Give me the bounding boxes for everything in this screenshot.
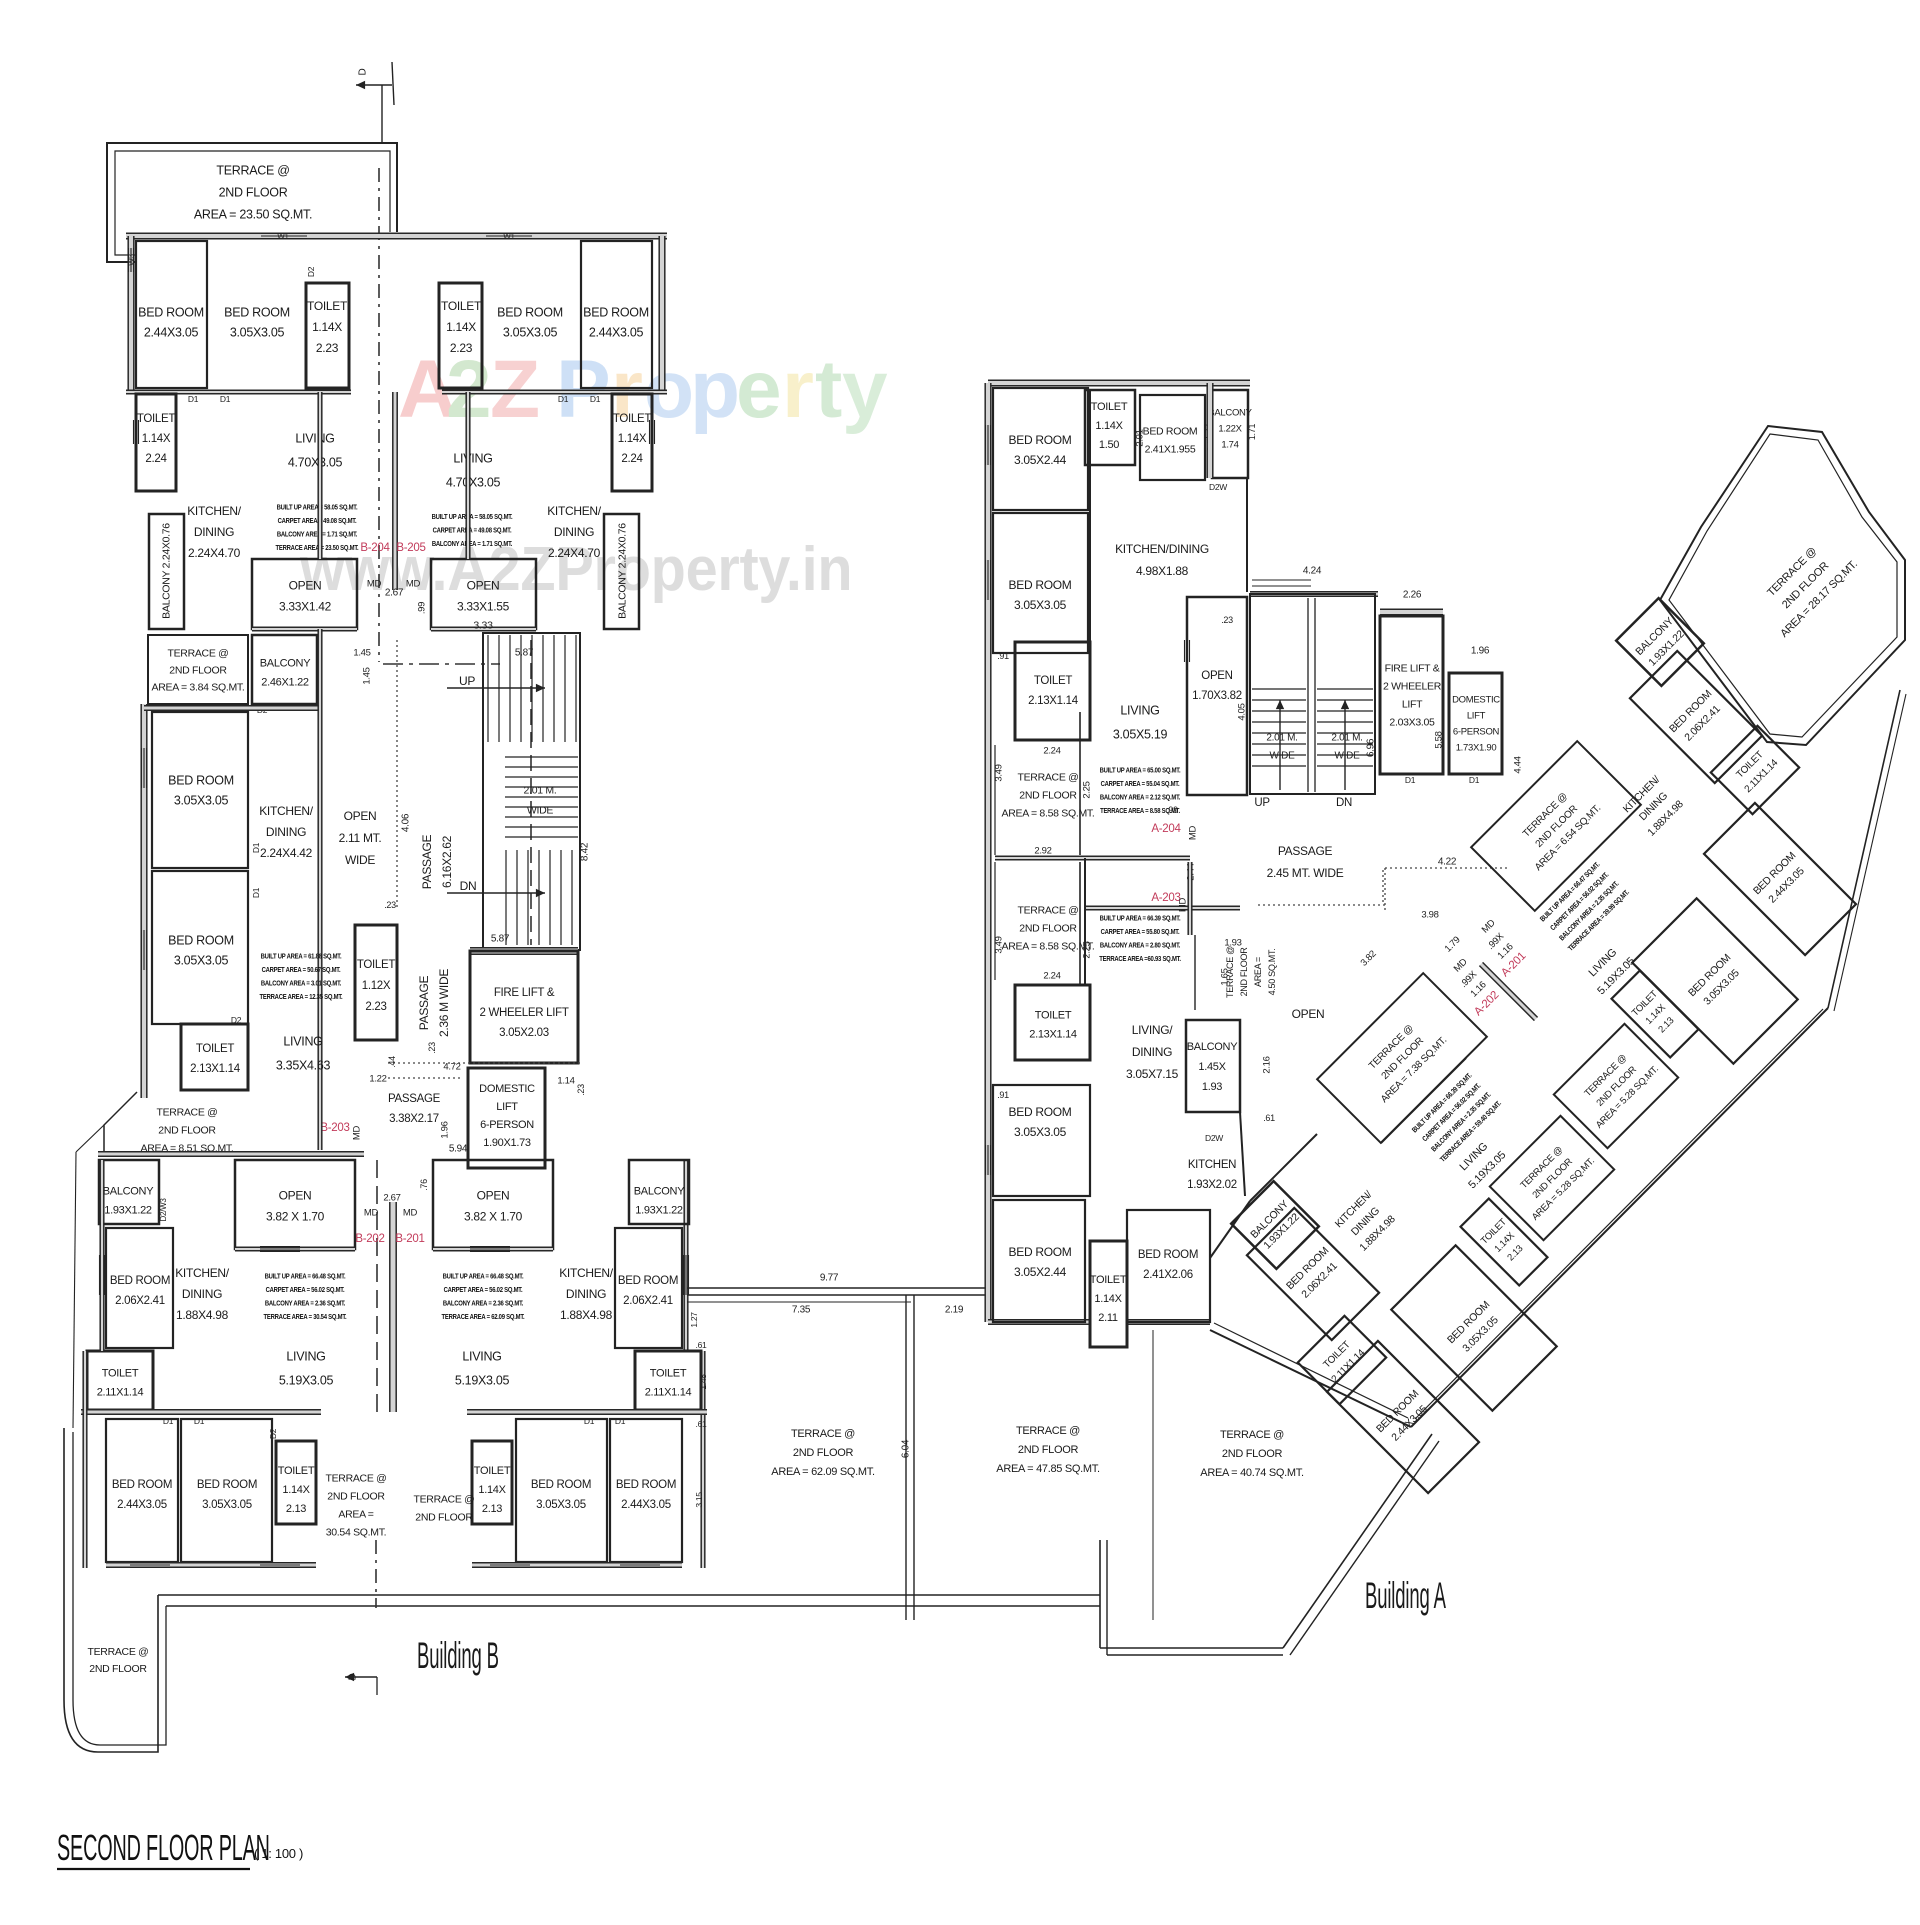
svg-text:2.01 M.: 2.01 M. [1266, 733, 1297, 744]
svg-text:D1: D1 [558, 394, 569, 404]
svg-text:OPEN: OPEN [1292, 1007, 1325, 1021]
svg-text:3.98: 3.98 [1421, 909, 1438, 920]
svg-text:1.71: 1.71 [1247, 424, 1257, 441]
svg-text:D1: D1 [194, 1416, 205, 1426]
svg-text:DN: DN [1336, 797, 1352, 809]
svg-text:2.25: 2.25 [1081, 941, 1092, 958]
svg-text:2.24: 2.24 [1043, 970, 1060, 981]
svg-text:KITCHEN/DINING1.88X4.98: KITCHEN/DINING1.88X4.98 [175, 1266, 230, 1322]
svg-text:2.01 M.: 2.01 M. [524, 785, 557, 797]
svg-text:( 1: 100 ): ( 1: 100 ) [254, 1846, 303, 1861]
svg-text:D1: D1 [615, 1416, 626, 1426]
svg-text:D1: D1 [220, 394, 231, 404]
svg-text:.91: .91 [997, 1090, 1009, 1100]
svg-text:9.77: 9.77 [820, 1273, 839, 1284]
svg-text:B-201: B-201 [395, 1233, 424, 1245]
svg-text:BALCONY 2.24X0.76: BALCONY 2.24X0.76 [161, 523, 173, 619]
svg-text:DN: DN [460, 879, 477, 893]
svg-text:D1: D1 [251, 842, 261, 853]
svg-text:D2W: D2W [1205, 1133, 1223, 1143]
svg-text:3.15: 3.15 [694, 1492, 704, 1508]
svg-text:A-204: A-204 [1151, 823, 1181, 835]
svg-text:KITCHEN/DINING2.24X4.42: KITCHEN/DINING2.24X4.42 [259, 804, 314, 860]
svg-text:.61: .61 [1263, 1113, 1275, 1123]
svg-text:UP: UP [459, 674, 475, 688]
svg-text:.61: .61 [696, 1340, 707, 1350]
svg-text:D2: D2 [231, 1015, 242, 1025]
svg-text:W3: W3 [127, 253, 136, 265]
svg-text:2.25: 2.25 [1081, 781, 1092, 798]
svg-text:D: D [348, 1673, 359, 1680]
svg-text:KITCHEN/DINING2.24X4.70: KITCHEN/DINING2.24X4.70 [547, 504, 602, 560]
svg-text:2.67: 2.67 [383, 1192, 400, 1203]
svg-text:1.45: 1.45 [353, 647, 370, 658]
svg-text:Building B: Building B [417, 1636, 499, 1676]
svg-text:5.58: 5.58 [1433, 731, 1444, 748]
svg-text:BUILT UP AREA = 58.05 SQ.MT.CA: BUILT UP AREA = 58.05 SQ.MT.CARPET AREA … [432, 514, 513, 549]
svg-text:2.19: 2.19 [945, 1305, 964, 1316]
svg-text:KITCHEN/DINING2.24X4.70: KITCHEN/DINING2.24X4.70 [187, 504, 242, 560]
svg-text:2.67: 2.67 [385, 588, 404, 599]
svg-text:D2/W3: D2/W3 [159, 1198, 168, 1222]
svg-text:.23: .23 [427, 1042, 437, 1054]
svg-text:MD: MD [367, 578, 382, 589]
svg-text:D1: D1 [251, 887, 261, 898]
svg-text:A-203: A-203 [1151, 892, 1180, 904]
svg-text:W1: W1 [277, 232, 289, 241]
svg-text:SECOND FLOOR PLAN: SECOND FLOOR PLAN [57, 1829, 270, 1869]
svg-text:1.96: 1.96 [1471, 646, 1490, 657]
svg-text:1.48: 1.48 [698, 1374, 708, 1390]
svg-text:D: D [358, 68, 369, 75]
svg-text:D1: D1 [584, 1416, 595, 1426]
svg-text:4.05: 4.05 [1236, 703, 1247, 720]
svg-text:.23: .23 [1221, 615, 1233, 625]
svg-text:D2W: D2W [1209, 482, 1227, 492]
svg-text:MD: MD [364, 1207, 379, 1218]
svg-text:r: r [782, 344, 814, 435]
svg-text:2.01 M.: 2.01 M. [1331, 733, 1362, 744]
svg-text:W1: W1 [503, 232, 515, 241]
svg-text:MD: MD [1187, 825, 1198, 840]
svg-text:UP: UP [1254, 797, 1270, 809]
svg-text:2.92: 2.92 [1034, 845, 1051, 856]
svg-text:BALCONY 2.24X0.76: BALCONY 2.24X0.76 [617, 523, 629, 619]
svg-text:p: p [690, 344, 740, 435]
svg-text:t: t [815, 344, 842, 435]
svg-text:8.42: 8.42 [580, 842, 591, 861]
svg-text:y: y [842, 344, 888, 435]
svg-text:6.96: 6.96 [1366, 738, 1377, 757]
svg-text:.61: .61 [696, 1419, 707, 1429]
svg-text:.76: .76 [419, 1179, 429, 1191]
svg-text:Building A: Building A [1365, 1576, 1446, 1616]
svg-text:2.26: 2.26 [1403, 590, 1422, 601]
svg-text:B-205: B-205 [396, 542, 425, 554]
svg-text:2.24: 2.24 [1043, 745, 1060, 756]
svg-text:4.44: 4.44 [1512, 756, 1523, 773]
svg-text:B-202: B-202 [355, 1233, 384, 1245]
svg-text:1.45: 1.45 [361, 667, 372, 684]
svg-text:4.22: 4.22 [1438, 857, 1457, 868]
svg-text:MD: MD [351, 1125, 362, 1140]
svg-text:1.96: 1.96 [439, 1121, 450, 1138]
svg-text:KITCHEN/DINING1.88X4.98: KITCHEN/DINING1.88X4.98 [559, 1266, 614, 1322]
svg-text:D1: D1 [1405, 775, 1416, 785]
svg-text:7.35: 7.35 [792, 1305, 811, 1316]
svg-text:1.14: 1.14 [557, 1075, 574, 1086]
svg-text:D1: D1 [188, 394, 199, 404]
svg-text:MD: MD [403, 1207, 418, 1218]
svg-text:1.27: 1.27 [689, 1312, 699, 1328]
svg-text:4.06: 4.06 [401, 813, 412, 832]
svg-text:.44: .44 [387, 1056, 397, 1068]
svg-text:D2: D2 [306, 266, 316, 277]
svg-text:WIDE: WIDE [527, 805, 554, 817]
svg-text:2.16: 2.16 [1261, 1056, 1272, 1073]
svg-text:D1: D1 [163, 1416, 174, 1426]
svg-text:D1: D1 [1469, 775, 1480, 785]
svg-text:.23: .23 [576, 1084, 586, 1096]
svg-text:WIDE: WIDE [1270, 751, 1296, 762]
svg-text:WIDE: WIDE [1335, 751, 1361, 762]
svg-text:.99: .99 [1166, 805, 1178, 815]
svg-text:1.22: 1.22 [369, 1073, 386, 1084]
svg-text:D1: D1 [590, 394, 601, 404]
svg-text:5.94: 5.94 [449, 1144, 468, 1155]
svg-text:6.04: 6.04 [901, 1439, 912, 1458]
svg-text:e: e [736, 344, 782, 435]
svg-text:4.24: 4.24 [1303, 566, 1322, 577]
svg-text:1.93: 1.93 [1224, 937, 1241, 948]
svg-text:B-203: B-203 [320, 1122, 349, 1134]
svg-text:OPEN2.11 MT.WIDE: OPEN2.11 MT.WIDE [339, 809, 382, 867]
svg-text:MD: MD [406, 578, 421, 589]
svg-text:3.33: 3.33 [473, 620, 493, 632]
svg-text:LIVING/DINING3.05X7.15: LIVING/DINING3.05X7.15 [1126, 1023, 1179, 1081]
svg-text:.91: .91 [997, 651, 1009, 661]
svg-text:D2: D2 [268, 1428, 278, 1439]
svg-text:5.87: 5.87 [491, 934, 510, 945]
svg-text:.23: .23 [384, 900, 396, 910]
svg-text:1.65: 1.65 [1219, 968, 1230, 985]
svg-text:B-204: B-204 [360, 542, 390, 554]
svg-text:.99: .99 [416, 602, 427, 614]
